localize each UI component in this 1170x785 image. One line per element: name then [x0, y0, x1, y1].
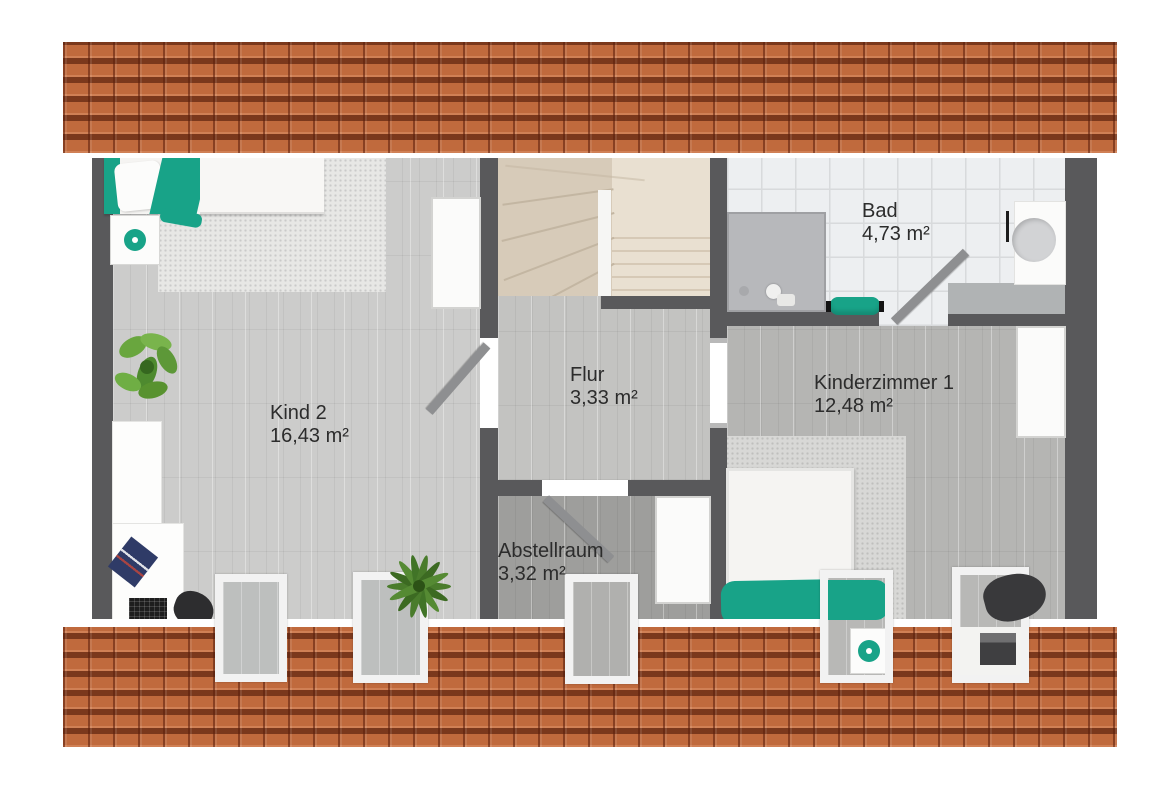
faucet [1006, 211, 1009, 242]
sink-basin [1012, 218, 1056, 262]
knee-wall [948, 283, 1065, 315]
stairs-divider [598, 190, 611, 296]
room-name: Bad [862, 200, 930, 223]
wall-bad-west [710, 158, 727, 338]
room-name: Kinderzimmer 1 [814, 372, 954, 395]
stairs-flight-treads [612, 226, 710, 296]
room-name: Flur [570, 364, 638, 387]
stair-railing [601, 296, 713, 309]
shower-drain [739, 286, 749, 296]
door-jamb [710, 338, 727, 343]
room-area: 16,43 m² [270, 425, 349, 448]
nightstand-kind2 [110, 215, 160, 265]
label-abstellraum: Abstellraum 3,32 m² [498, 540, 604, 586]
room-area: 3,33 m² [570, 387, 638, 410]
room-name: Kind 2 [270, 402, 349, 425]
towel-bench-end [826, 301, 831, 312]
wall-kind2-east-upper [480, 158, 498, 338]
plant-leaf [153, 343, 182, 377]
bed-kind2 [104, 158, 324, 214]
room-area: 3,32 m² [498, 563, 604, 586]
door-jamb [710, 423, 727, 428]
dresser-kind2 [112, 421, 162, 525]
room-area: 4,73 m² [862, 223, 930, 246]
lamp-dot [132, 237, 138, 243]
lamp-kinderzimmer [858, 640, 880, 662]
skylight-4-blanket [820, 580, 888, 620]
lamp-kind2 [124, 229, 146, 251]
label-bad: Bad 4,73 m² [862, 200, 930, 246]
wardrobe-kinderzimmer [1016, 326, 1066, 438]
palm-plant [380, 551, 458, 623]
shower-hose [777, 294, 795, 306]
plant-monstera [112, 334, 184, 420]
roof-top [63, 42, 1117, 153]
room-area: 12,48 m² [814, 395, 954, 418]
duvet-kind2 [200, 158, 324, 214]
room-name: Abstellraum [498, 540, 604, 563]
wall-right [1065, 158, 1097, 626]
wall-abstellraum-north-right [628, 480, 710, 496]
wall-kind2-east-lower [480, 428, 498, 626]
wall-abstellraum-north-left [498, 480, 542, 496]
label-flur: Flur 3,33 m² [570, 364, 638, 410]
palm-center [413, 580, 425, 592]
floor-plan: Kind 2 16,43 m² Flur 3,33 m² Bad 4,73 m²… [0, 0, 1170, 785]
wall-bad-south-east [948, 314, 1065, 326]
shower [727, 212, 826, 312]
wardrobe-abstellraum [655, 496, 711, 604]
skylight-3 [565, 574, 638, 684]
plant-center [140, 360, 154, 374]
towel-bench-end [879, 301, 884, 312]
lamp-dot [866, 648, 872, 654]
laptop [980, 633, 1016, 665]
skylight-1 [215, 574, 287, 682]
label-kind2: Kind 2 16,43 m² [270, 402, 349, 448]
wardrobe-kind2 [431, 197, 481, 309]
label-kinderzimmer1: Kinderzimmer 1 12,48 m² [814, 372, 954, 418]
skylight-4 [820, 570, 893, 683]
towel-bench [830, 297, 880, 315]
